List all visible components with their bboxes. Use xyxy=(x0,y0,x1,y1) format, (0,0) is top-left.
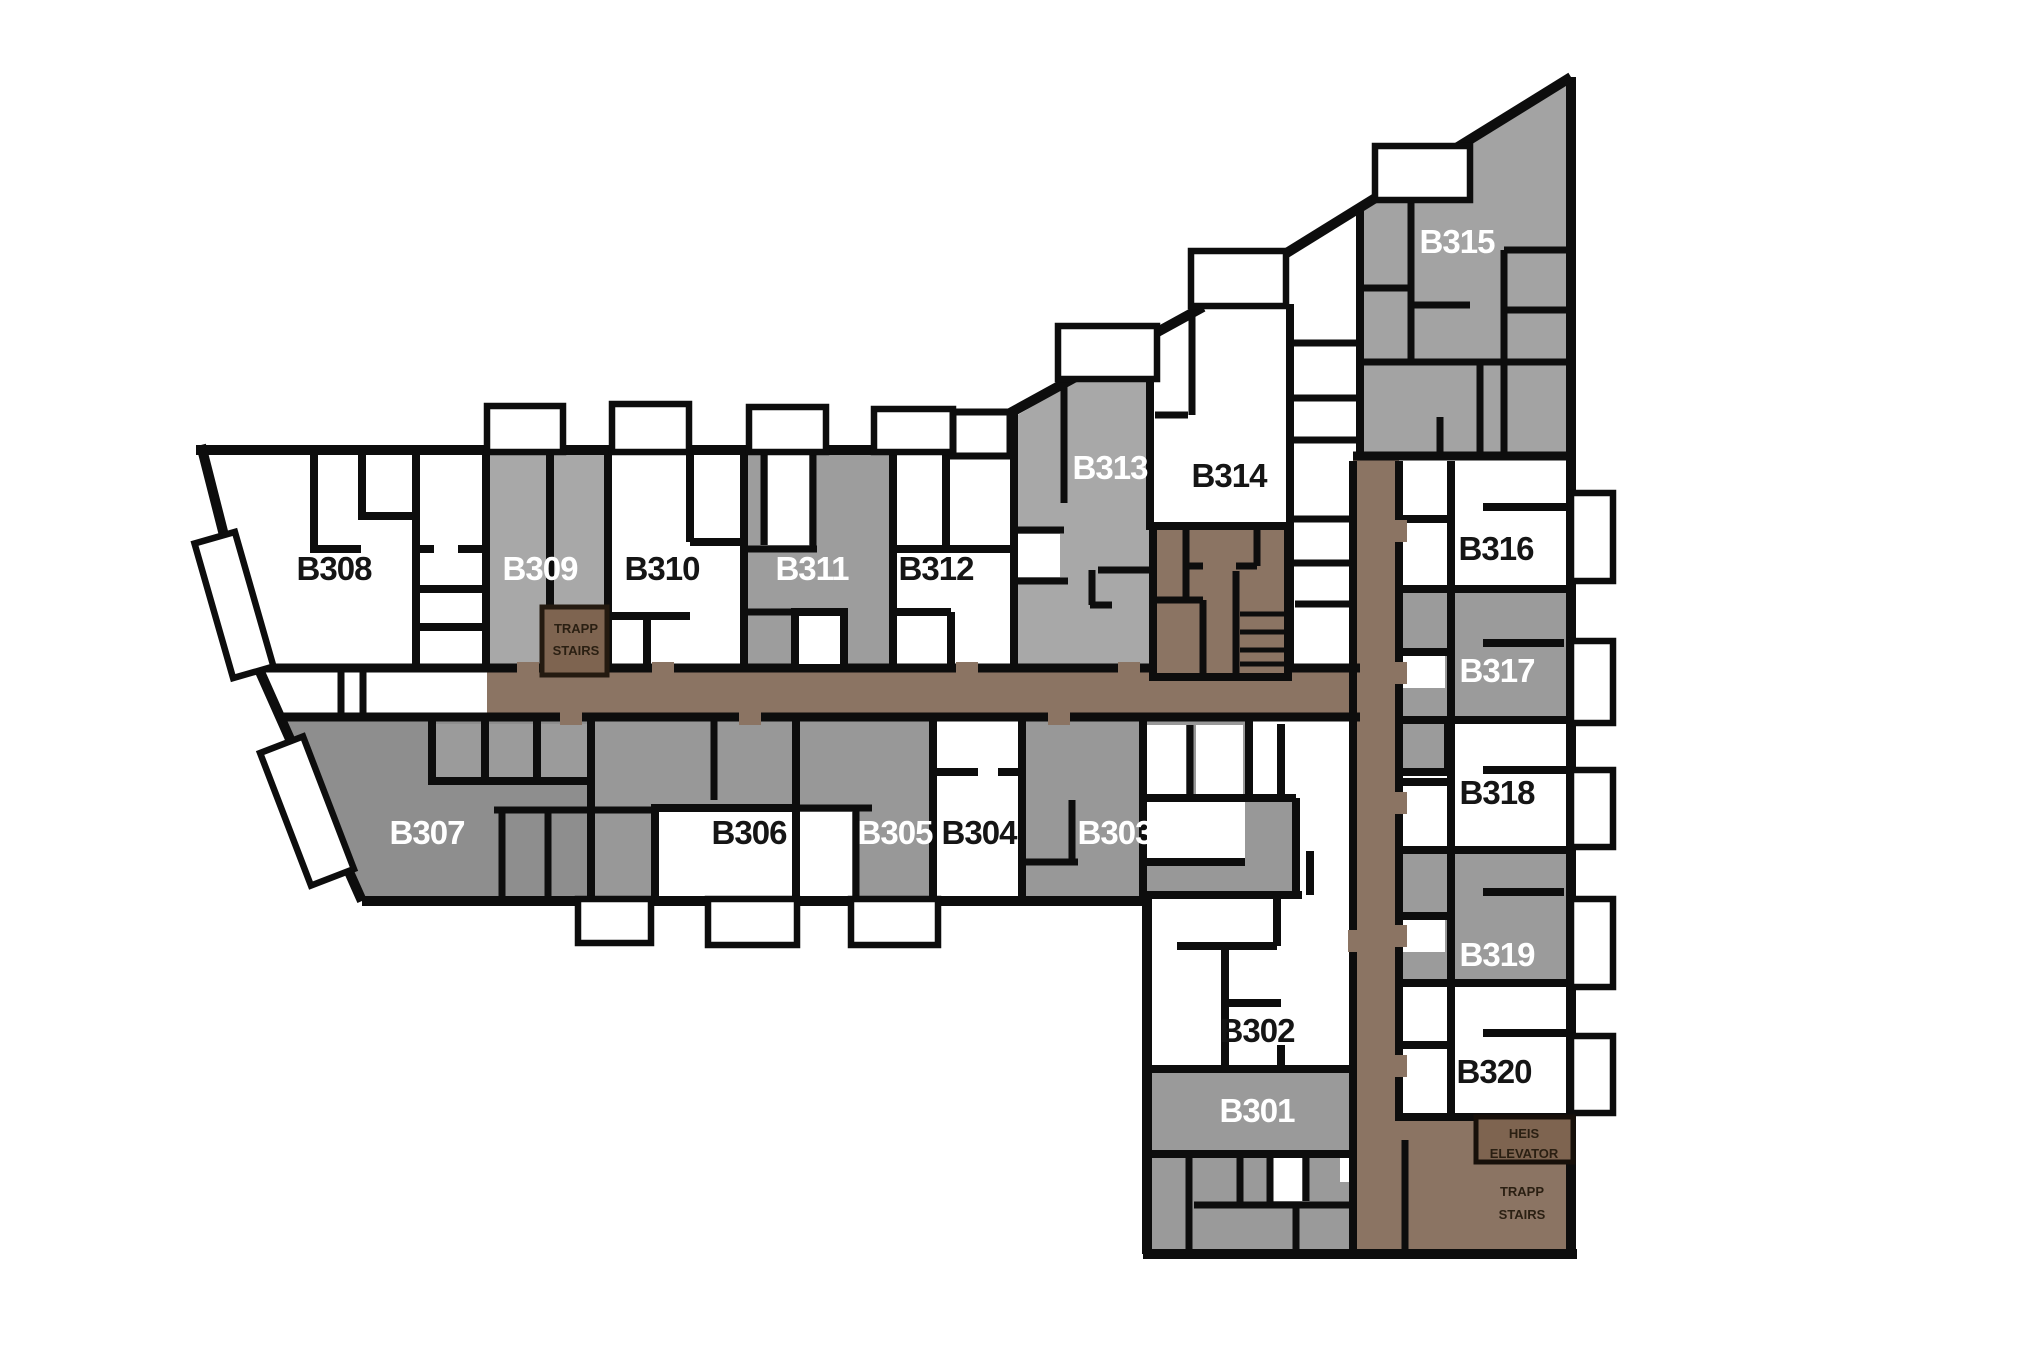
svg-text:B311: B311 xyxy=(775,550,849,587)
svg-text:B316: B316 xyxy=(1459,530,1535,567)
svg-text:HEIS: HEIS xyxy=(1509,1126,1540,1141)
svg-text:B307: B307 xyxy=(390,814,465,851)
svg-text:B315: B315 xyxy=(1420,223,1496,260)
svg-text:B312: B312 xyxy=(899,550,975,587)
svg-text:B319: B319 xyxy=(1460,936,1536,973)
svg-text:B303: B303 xyxy=(1078,814,1154,851)
svg-text:B305: B305 xyxy=(858,814,934,851)
svg-text:TRAPP: TRAPP xyxy=(1500,1184,1544,1199)
svg-text:TRAPP: TRAPP xyxy=(554,621,598,636)
svg-text:B308: B308 xyxy=(297,550,373,587)
svg-text:B302: B302 xyxy=(1220,1012,1296,1049)
svg-text:ELEVATOR: ELEVATOR xyxy=(1490,1146,1559,1161)
svg-text:B313: B313 xyxy=(1073,449,1149,486)
svg-text:B318: B318 xyxy=(1460,774,1536,811)
svg-text:STAIRS: STAIRS xyxy=(1499,1207,1546,1222)
svg-text:B310: B310 xyxy=(625,550,700,587)
svg-text:B304: B304 xyxy=(942,814,1019,851)
svg-text:B306: B306 xyxy=(712,814,788,851)
svg-text:B301: B301 xyxy=(1220,1092,1296,1129)
svg-text:B314: B314 xyxy=(1192,457,1269,494)
svg-text:B309: B309 xyxy=(503,550,579,587)
svg-text:B317: B317 xyxy=(1460,652,1535,689)
svg-text:STAIRS: STAIRS xyxy=(553,643,600,658)
svg-text:B320: B320 xyxy=(1457,1053,1532,1090)
